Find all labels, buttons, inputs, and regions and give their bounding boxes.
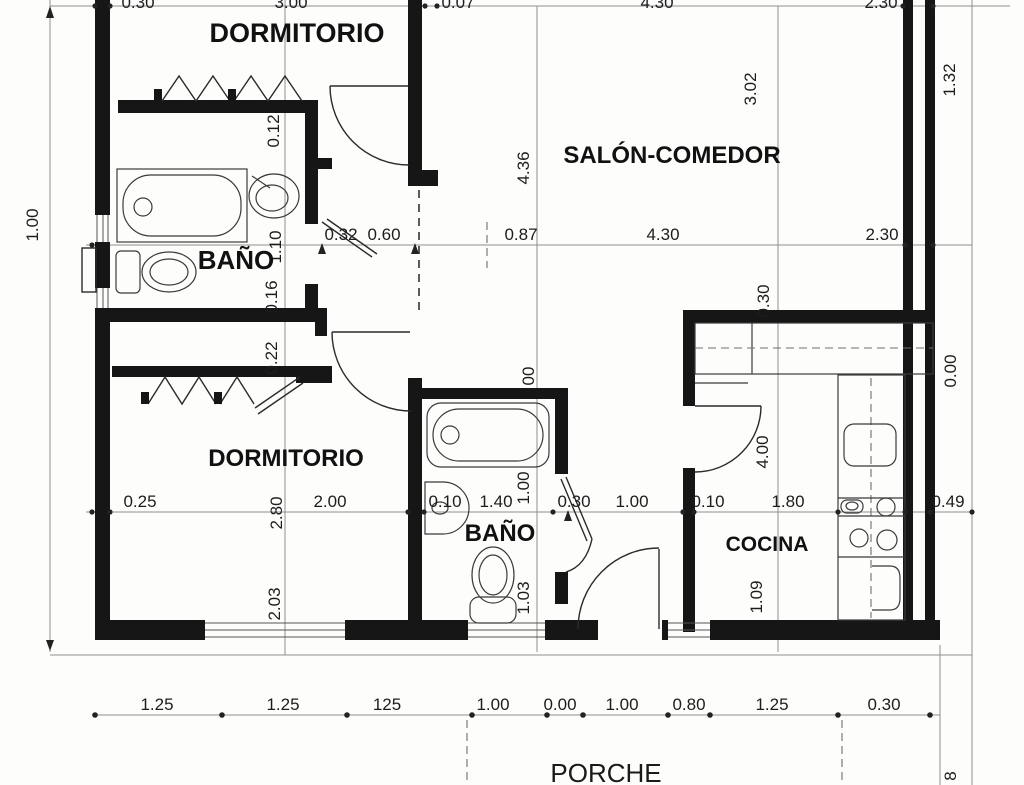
dim-label: 4.36 <box>514 151 533 184</box>
room-label-cocina: COCINA <box>726 533 809 556</box>
dim-label: 2.30 <box>865 225 898 244</box>
dim-label: 0.07 <box>441 0 474 12</box>
dim-label: 0.87 <box>504 225 537 244</box>
dim-labels-vertical: 1.00 0.12 1.10 0.16 0.22 2.80 2.03 4.36 … <box>23 63 960 780</box>
dim-label: 0.30 <box>754 284 773 317</box>
dim-label: 1.25 <box>140 695 173 714</box>
dim-labels-bottom: 1.25 1.25 125 1.00 0.00 1.00 0.80 1.25 0… <box>140 695 900 714</box>
dim-label: 0.49 <box>931 492 964 511</box>
room-label-dormitorio-top: DORMITORIO <box>210 18 385 48</box>
toilet-icon-top-bath <box>116 251 196 293</box>
door-arc-hall-top <box>330 86 409 165</box>
room-labels: DORMITORIO SALÓN-COMEDOR BAÑO DORMITORIO… <box>198 18 809 785</box>
dim-label: 1.32 <box>940 63 959 96</box>
door-arc-hall-lower <box>332 332 411 411</box>
dim-label: 3.02 <box>741 72 760 105</box>
opening-dashed-lines <box>419 190 487 315</box>
dim-label: 1.03 <box>514 581 533 614</box>
room-label-bano-top: BAÑO <box>198 245 275 275</box>
dim-label: 1.25 <box>266 695 299 714</box>
dim-label: 0.80 <box>672 695 705 714</box>
dim-label: 1.25 <box>755 695 788 714</box>
dim-label: 1.00 <box>605 695 638 714</box>
dim-label: 8 <box>941 771 960 780</box>
room-label-porche: PORCHE <box>550 758 661 785</box>
dim-label: 4.00 <box>753 435 772 468</box>
oven-icon <box>872 566 900 610</box>
door-arc-cocina <box>695 406 761 472</box>
closet-zigzag-top-2 <box>234 76 302 101</box>
dim-label: 1.00 <box>23 208 42 241</box>
window-sills <box>82 215 710 637</box>
bathtub-icon-bottom <box>427 403 549 467</box>
dim-label: 3.00 <box>274 0 307 12</box>
dim-label: 0.16 <box>262 280 281 313</box>
dim-label: 2.80 <box>267 496 286 529</box>
door-arc-entrance <box>578 548 659 629</box>
closet-zigzag-bottom-2 <box>220 377 254 404</box>
dim-label: 0.30 <box>867 695 900 714</box>
room-label-salon-comedor: SALÓN-COMEDOR <box>563 141 780 169</box>
dim-label: 0.25 <box>123 492 156 511</box>
bathtub-icon-top <box>117 169 247 242</box>
dim-labels-mid: 0.32 0.60 0.87 4.30 2.30 <box>324 225 898 244</box>
dim-label: 0.60 <box>367 225 400 244</box>
dim-label: 0.10 <box>428 492 461 511</box>
dim-label: 2.00 <box>313 492 346 511</box>
dim-label: 1.09 <box>747 580 766 613</box>
dim-label: 1.00 <box>615 492 648 511</box>
dim-label: 0.30 <box>557 492 590 511</box>
kitchen-counter <box>695 323 933 620</box>
dim-label: 0.10 <box>691 492 724 511</box>
dim-label: 4.30 <box>646 225 679 244</box>
door-leaf-dormitorio-bottom <box>255 377 303 414</box>
toilet-icon-bottom-bath <box>470 547 516 623</box>
floor-plan-page: 0.30 3.00 0.07 4.30 2.30 0.32 0.60 0.87 … <box>0 0 1024 785</box>
dim-label: 0.32 <box>324 225 357 244</box>
dim-label: 0.00 <box>941 354 960 387</box>
bottom-window-icon-1 <box>205 623 345 637</box>
dim-label: 0.12 <box>264 114 283 147</box>
dim-label: 0.00 <box>543 695 576 714</box>
bottom-window-icon-2 <box>468 623 545 637</box>
dim-label: 1.00 <box>514 471 533 504</box>
floor-plan-drawing: 0.30 3.00 0.07 4.30 2.30 0.32 0.60 0.87 … <box>0 0 1024 785</box>
dim-label: 4.30 <box>640 0 673 12</box>
dim-label: 125 <box>373 695 401 714</box>
dim-label: 1.00 <box>476 695 509 714</box>
closet-zigzag-top-1 <box>162 76 230 101</box>
room-label-bano-bottom: BAÑO <box>465 519 536 547</box>
sink-icon-top-bath <box>249 174 299 218</box>
dim-label: 00 <box>519 367 538 386</box>
closet-zigzag-bottom-1 <box>148 377 216 404</box>
dim-label: 0.22 <box>262 341 281 374</box>
dim-label: 2.30 <box>864 0 897 12</box>
dim-label: 0.30 <box>121 0 154 12</box>
dim-label: 1.80 <box>771 492 804 511</box>
dim-label: 2.03 <box>265 587 284 620</box>
room-label-dormitorio-bottom: DORMITORIO <box>208 445 364 472</box>
dim-label: 1.40 <box>479 492 512 511</box>
